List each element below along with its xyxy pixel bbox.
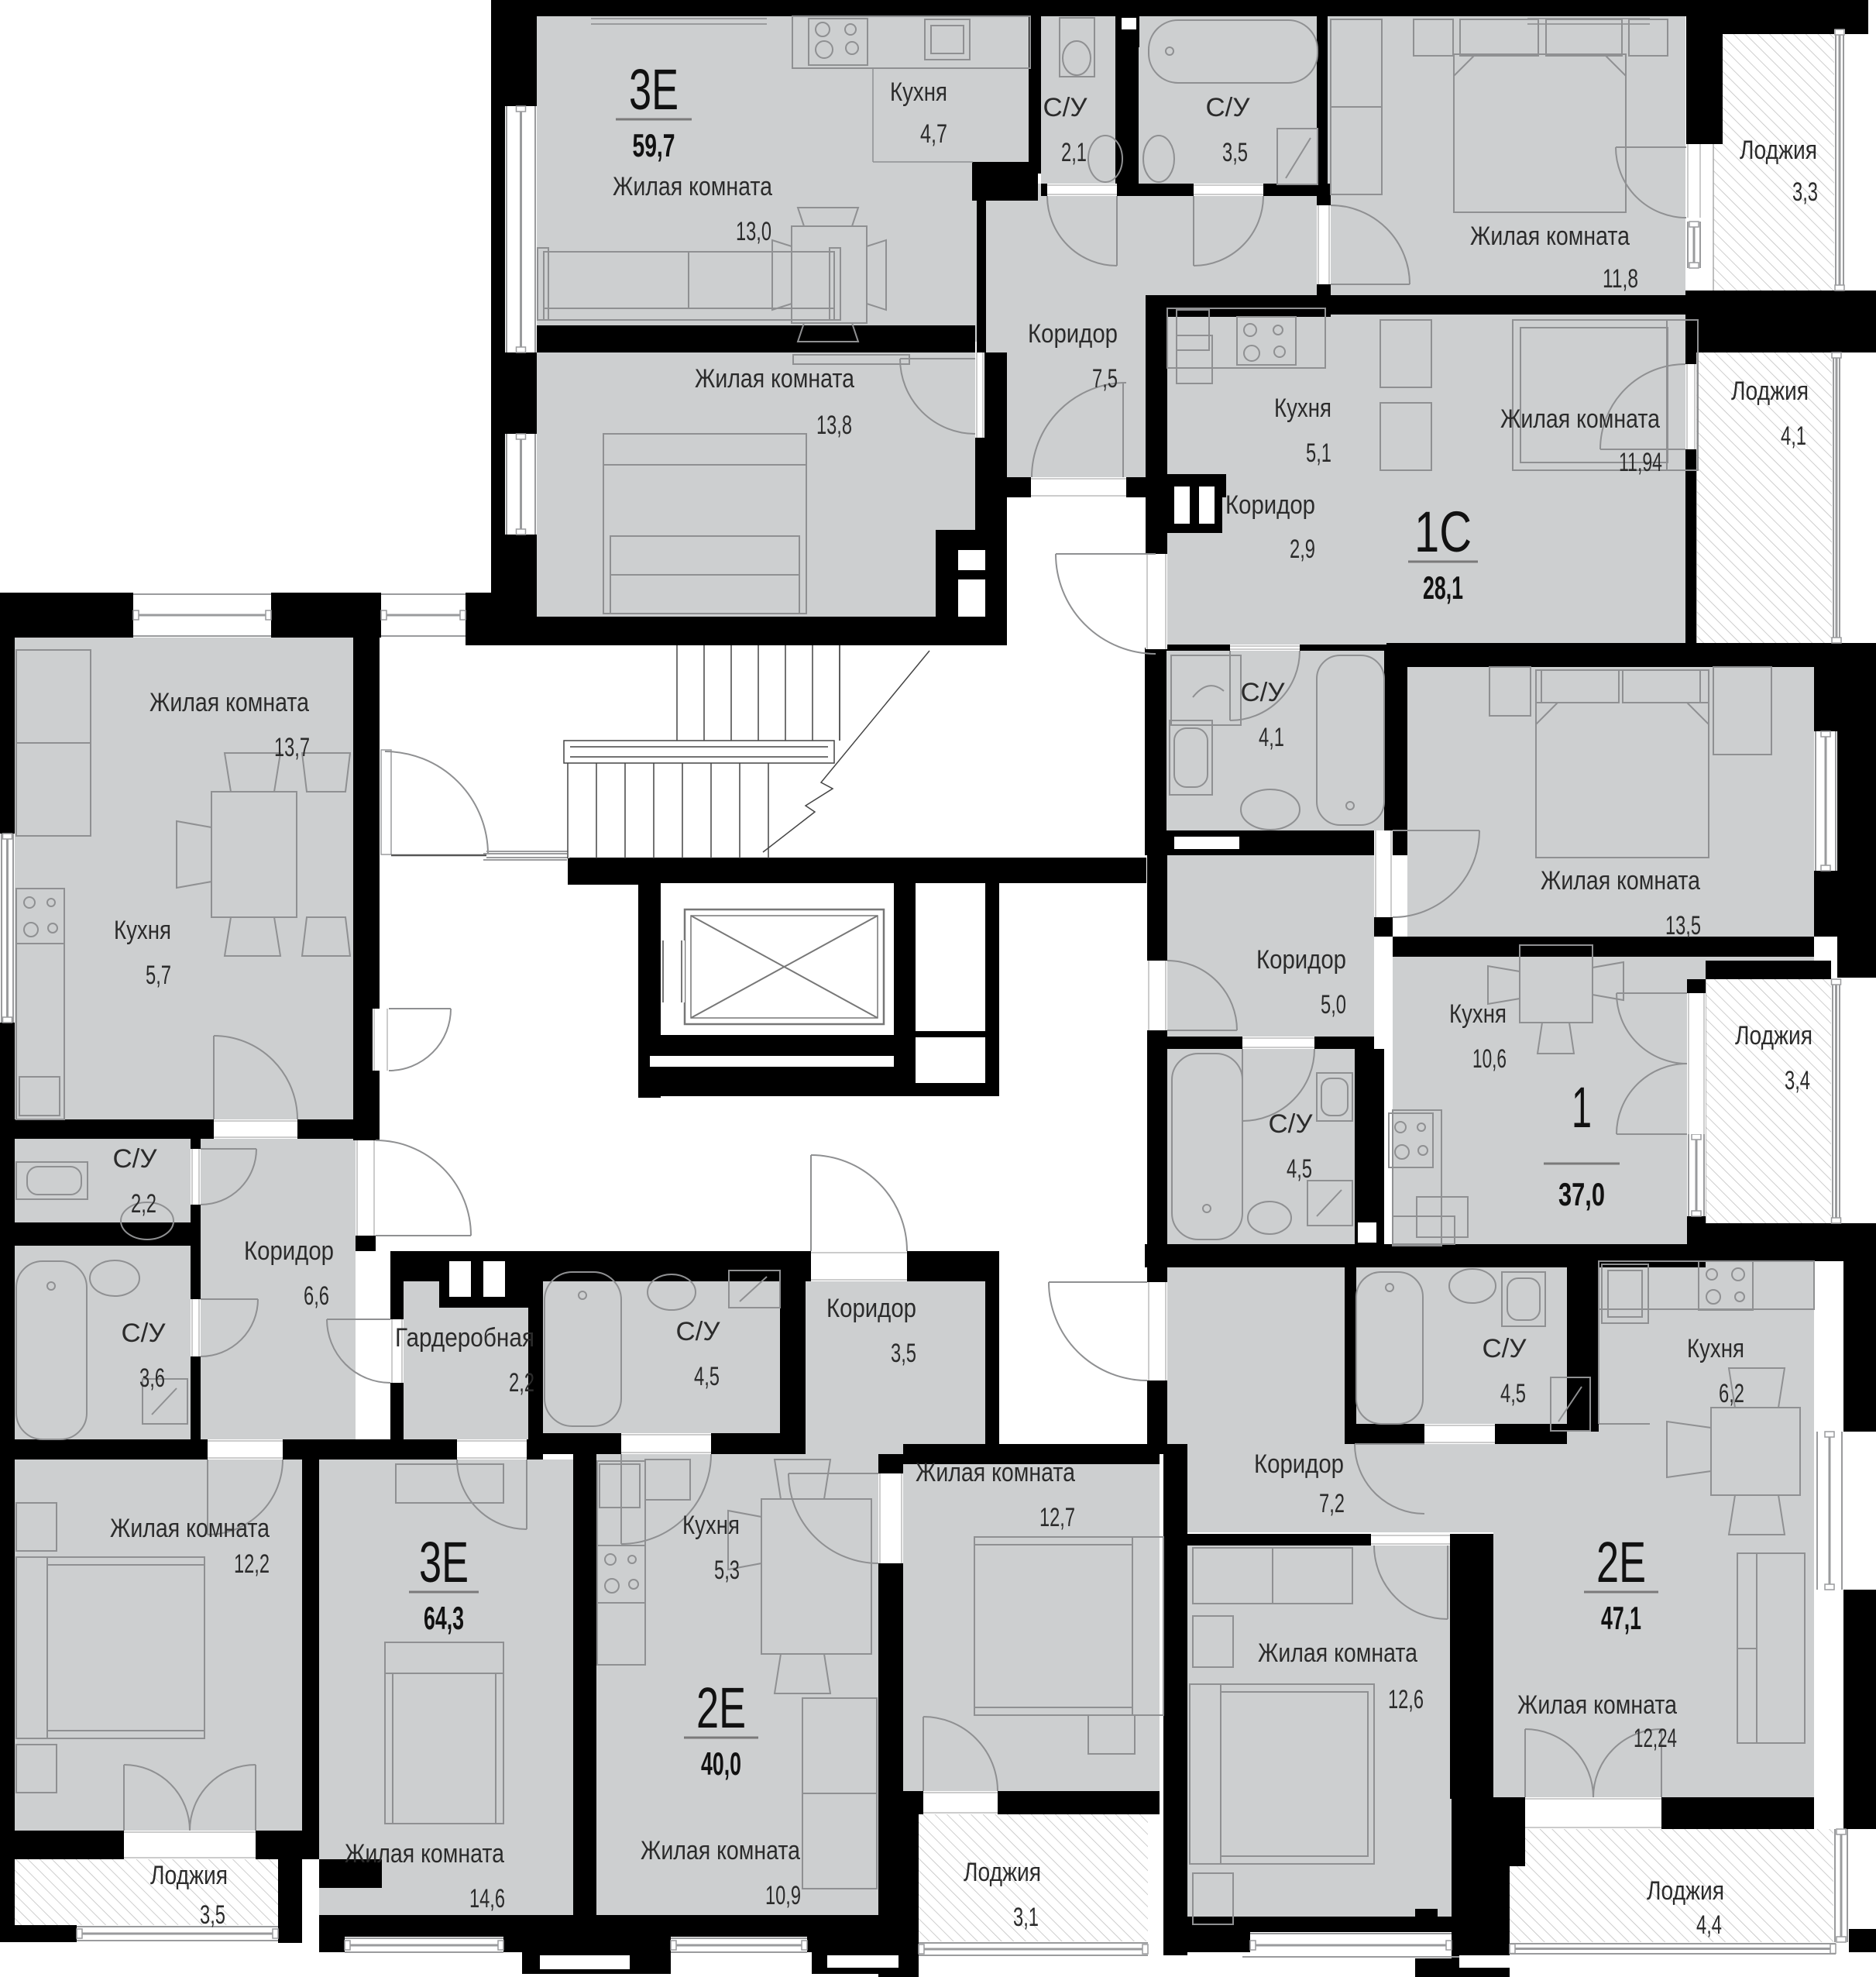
- svg-text:Лоджия: Лоджия: [1735, 1021, 1812, 1050]
- svg-text:37,0: 37,0: [1558, 1176, 1605, 1212]
- svg-text:10,9: 10,9: [765, 1881, 801, 1910]
- svg-text:14,6: 14,6: [469, 1884, 505, 1913]
- svg-text:Кухня: Кухня: [1687, 1334, 1744, 1363]
- svg-text:10,6: 10,6: [1472, 1044, 1507, 1074]
- svg-text:Кухня: Кухня: [682, 1511, 740, 1540]
- svg-text:С/У: С/У: [1483, 1334, 1527, 1363]
- svg-text:3,4: 3,4: [1785, 1066, 1810, 1095]
- svg-text:С/У: С/У: [1043, 93, 1087, 122]
- svg-text:С/У: С/У: [113, 1144, 157, 1174]
- svg-text:2Е: 2Е: [1596, 1530, 1646, 1594]
- svg-text:Кухня: Кухня: [1449, 999, 1507, 1029]
- svg-text:Коридор: Коридор: [826, 1294, 916, 1323]
- svg-text:Лоджия: Лоджия: [964, 1858, 1041, 1887]
- svg-text:С/У: С/У: [122, 1319, 166, 1348]
- svg-text:Коридор: Коридор: [1028, 319, 1118, 349]
- svg-text:Лоджия: Лоджия: [150, 1861, 228, 1890]
- svg-text:12,7: 12,7: [1039, 1503, 1075, 1532]
- svg-text:С/У: С/У: [676, 1317, 720, 1346]
- svg-text:Коридор: Коридор: [1225, 490, 1315, 520]
- svg-text:3,5: 3,5: [1222, 138, 1248, 167]
- svg-text:4,4: 4,4: [1696, 1910, 1722, 1940]
- svg-text:4,7: 4,7: [920, 119, 947, 149]
- svg-text:Жилая комната: Жилая комната: [695, 364, 854, 394]
- svg-text:3,6: 3,6: [139, 1363, 165, 1393]
- svg-text:Кухня: Кухня: [114, 916, 171, 945]
- svg-text:40,0: 40,0: [701, 1745, 741, 1782]
- svg-text:Жилая комната: Жилая комната: [149, 688, 309, 717]
- svg-text:4,5: 4,5: [1287, 1154, 1312, 1184]
- svg-text:Лоджия: Лоджия: [1731, 376, 1809, 406]
- svg-text:4,1: 4,1: [1259, 723, 1284, 752]
- svg-text:Лоджия: Лоджия: [1740, 136, 1817, 165]
- svg-text:Жилая комната: Жилая комната: [110, 1514, 270, 1543]
- svg-text:4,5: 4,5: [694, 1362, 720, 1391]
- svg-text:Гардеробная: Гардеробная: [395, 1323, 534, 1353]
- svg-text:2,2: 2,2: [509, 1368, 534, 1398]
- svg-text:Жилая комната: Жилая комната: [1517, 1690, 1677, 1720]
- svg-text:59,7: 59,7: [633, 127, 675, 163]
- svg-text:6,2: 6,2: [1719, 1379, 1744, 1408]
- svg-text:Жилая комната: Жилая комната: [641, 1836, 800, 1865]
- svg-text:4,1: 4,1: [1781, 421, 1806, 451]
- svg-text:Коридор: Коридор: [1256, 945, 1346, 975]
- svg-text:5,3: 5,3: [714, 1556, 740, 1585]
- svg-text:С/У: С/У: [1241, 678, 1285, 707]
- svg-text:Кухня: Кухня: [890, 77, 947, 107]
- svg-text:5,1: 5,1: [1306, 438, 1331, 468]
- svg-text:5,0: 5,0: [1321, 990, 1346, 1019]
- svg-text:3Е: 3Е: [419, 1530, 469, 1594]
- svg-text:Жилая комната: Жилая комната: [1470, 222, 1630, 251]
- svg-text:Жилая комната: Жилая комната: [1258, 1638, 1417, 1668]
- svg-text:3,3: 3,3: [1792, 177, 1818, 207]
- svg-text:6,6: 6,6: [304, 1281, 329, 1311]
- svg-text:Коридор: Коридор: [1254, 1449, 1344, 1479]
- svg-text:3,1: 3,1: [1013, 1903, 1039, 1932]
- svg-text:1: 1: [1572, 1075, 1592, 1140]
- svg-text:11,94: 11,94: [1619, 448, 1662, 477]
- svg-text:2,1: 2,1: [1061, 138, 1087, 167]
- svg-text:Жилая комната: Жилая комната: [613, 172, 772, 201]
- svg-text:Жилая комната: Жилая комната: [1541, 866, 1700, 896]
- svg-text:13,7: 13,7: [274, 733, 310, 762]
- svg-text:Жилая комната: Жилая комната: [916, 1458, 1075, 1487]
- svg-text:Жилая комната: Жилая комната: [345, 1839, 504, 1869]
- svg-text:12,24: 12,24: [1634, 1724, 1677, 1753]
- svg-text:С/У: С/У: [1269, 1109, 1313, 1139]
- svg-text:Кухня: Кухня: [1274, 394, 1331, 423]
- svg-text:2,2: 2,2: [131, 1189, 156, 1219]
- svg-text:3,5: 3,5: [891, 1339, 916, 1368]
- svg-text:Коридор: Коридор: [244, 1236, 334, 1266]
- svg-text:С/У: С/У: [1206, 93, 1250, 122]
- svg-text:3,5: 3,5: [200, 1900, 225, 1930]
- svg-text:Жилая комната: Жилая комната: [1500, 404, 1660, 434]
- svg-text:7,5: 7,5: [1092, 364, 1118, 394]
- svg-text:5,7: 5,7: [146, 961, 171, 990]
- svg-text:13,0: 13,0: [736, 217, 771, 246]
- svg-text:2Е: 2Е: [696, 1676, 746, 1740]
- svg-text:13,8: 13,8: [816, 411, 852, 440]
- svg-text:3Е: 3Е: [629, 57, 679, 122]
- svg-text:47,1: 47,1: [1601, 1600, 1641, 1636]
- svg-text:11,8: 11,8: [1603, 264, 1638, 294]
- svg-text:1С: 1С: [1414, 500, 1472, 564]
- svg-text:7,2: 7,2: [1319, 1489, 1345, 1518]
- svg-text:12,2: 12,2: [234, 1549, 270, 1579]
- svg-text:13,5: 13,5: [1665, 911, 1701, 940]
- svg-text:64,3: 64,3: [424, 1600, 464, 1636]
- svg-text:4,5: 4,5: [1500, 1379, 1526, 1408]
- svg-text:28,1: 28,1: [1423, 569, 1463, 606]
- svg-text:Лоджия: Лоджия: [1647, 1876, 1724, 1906]
- svg-text:2,9: 2,9: [1290, 535, 1315, 564]
- svg-text:12,6: 12,6: [1388, 1685, 1424, 1714]
